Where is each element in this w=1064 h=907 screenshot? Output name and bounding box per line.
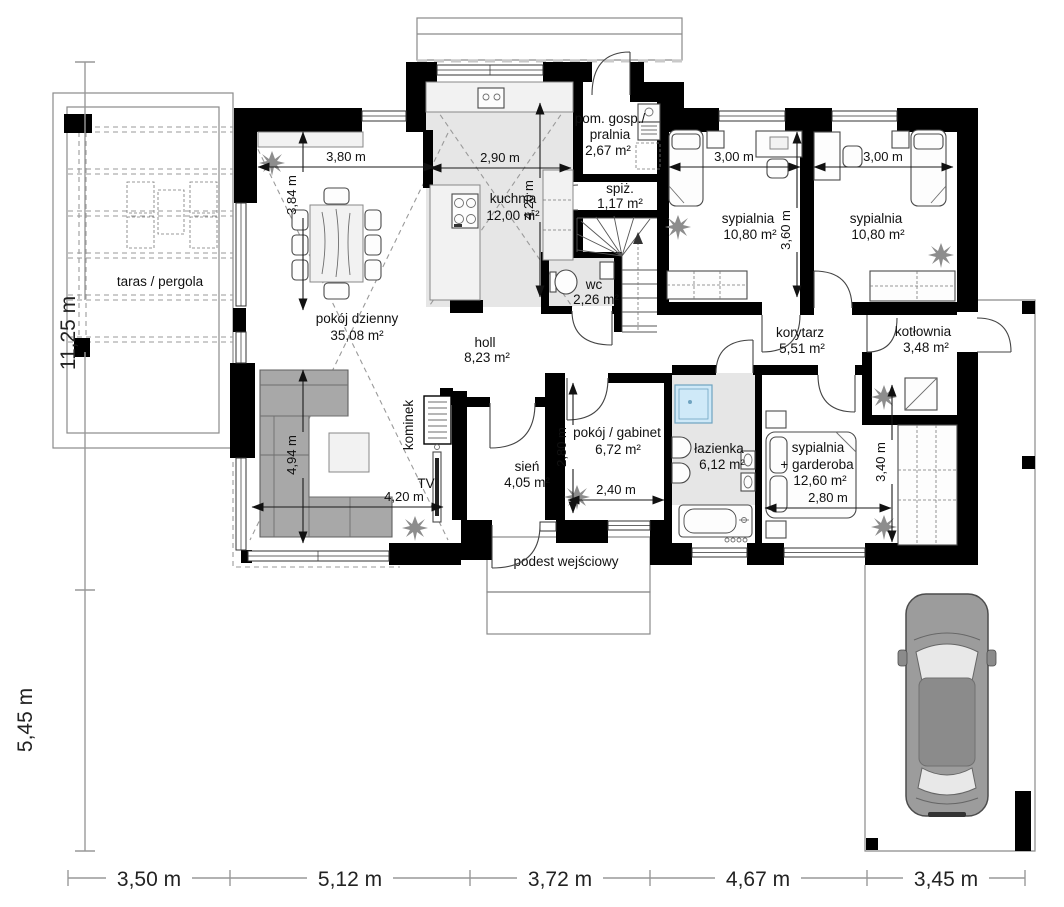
toilet [672, 437, 691, 458]
nightstand [766, 411, 786, 428]
window [248, 551, 389, 561]
living-room-name: pokój dzienny [316, 311, 399, 326]
carport-post [1015, 791, 1031, 851]
master-bedroom-door [818, 375, 855, 412]
dim-master-w-label: 2,80 m [808, 490, 848, 505]
window [719, 111, 785, 121]
pantry-label: spiż. 1,17 m² [597, 181, 643, 211]
window [437, 65, 543, 75]
back-door [592, 52, 630, 95]
dim-left-lower: 5,45 m [14, 590, 95, 851]
chair [767, 159, 788, 178]
pergola-post [64, 114, 92, 133]
hall-label: holl 8,23 m² [464, 335, 510, 365]
wardrobe [870, 271, 955, 301]
window [362, 111, 406, 121]
dim-gabinet-h-label: 2,80 m [554, 427, 569, 467]
carport-post [1022, 301, 1035, 314]
bedroom1-label: sypialnia 10,80 m² [722, 211, 777, 242]
boiler-room-area: 3,48 m² [903, 340, 949, 355]
bathroom-door [716, 340, 753, 373]
dim-bottom-5-label: 3,45 m [914, 868, 978, 891]
wardrobe-closet [898, 425, 957, 545]
dim-living-left-lower-label: 4,94 m [284, 435, 299, 475]
utility-area: 2,67 m² [585, 143, 631, 158]
hall-area: 8,23 m² [464, 350, 510, 365]
sideboard [258, 132, 363, 147]
window [236, 203, 246, 306]
dim-living-bottom-label: 4,20 m [384, 489, 424, 504]
nightstand [766, 521, 786, 538]
shower [675, 385, 712, 423]
dim-left-upper: 11,25 m [57, 62, 95, 590]
boiler-room-door [867, 315, 897, 352]
dim-bottom: 3,50 m 5,12 m 3,72 m 4,67 m 3,45 m [68, 866, 1025, 891]
vestibule-area: 4,05 m² [504, 475, 550, 490]
car [898, 594, 996, 817]
dim-master-h-label: 3,40 m [873, 442, 888, 482]
terrace-pergola: taras / pergola [53, 93, 233, 448]
living-room-area: 35,08 m² [330, 328, 384, 343]
dim-bedroom1-w-label: 3,00 m [714, 149, 754, 164]
pantry-area: 1,17 m² [597, 196, 643, 211]
car-roof [919, 678, 975, 766]
dining-table [310, 205, 363, 282]
window [236, 458, 246, 550]
bathroom-area: 6,12 m² [699, 457, 745, 472]
kitchen-sink [478, 88, 504, 108]
office-area: 6,72 m² [595, 442, 641, 457]
cooktop [452, 194, 478, 228]
wc-name: wc [585, 277, 603, 292]
window [692, 548, 747, 557]
dim-kitchen-w-label: 2,90 m [480, 150, 520, 165]
dim-living-top-label: 3,80 m [326, 149, 366, 164]
dim-bedrooms-h-label: 3,60 m [778, 210, 793, 250]
dim-left-upper-label: 11,25 m [57, 296, 80, 370]
nightstand [892, 131, 909, 148]
boiler [905, 378, 937, 410]
bathtub [679, 505, 752, 542]
bed [911, 130, 946, 206]
dim-living-top: 3,80 m [258, 149, 435, 167]
laptop [770, 137, 788, 149]
car-mirror [898, 650, 907, 666]
car-mirror [987, 650, 996, 666]
dim-bottom-2-label: 5,12 m [318, 868, 382, 891]
window [236, 332, 246, 363]
dim-master-h: 3,40 m [873, 385, 892, 542]
corridor-label: korytarz 5,51 m² [776, 325, 825, 356]
master-name-2: + garderoba [780, 457, 854, 472]
dim-gabinet-w-label: 2,40 m [596, 482, 636, 497]
sofa [260, 370, 392, 537]
window [784, 548, 865, 557]
chair [843, 146, 862, 167]
bedroom2-area: 10,80 m² [851, 227, 905, 242]
dim-kitchen-h-label: 4,20 m [521, 180, 536, 220]
dim-left-lower-label: 5,45 m [14, 688, 37, 752]
entry-platform: podest wejściowy [487, 537, 650, 634]
vestibule-name: sień [515, 459, 540, 474]
utility-label: pom. gosp./ pralnia 2,67 m² [575, 111, 646, 158]
master-area: 12,60 m² [793, 473, 847, 488]
hall-name: holl [474, 335, 495, 350]
boiler-room-label: kotłownia 3,48 m² [895, 324, 952, 355]
desk [814, 132, 840, 180]
master-name-1: sypialnia [792, 440, 845, 455]
wc-area: 2,26 m² [573, 292, 619, 307]
dim-bottom-4-label: 4,67 m [726, 868, 790, 891]
dim-bedroom2-w-label: 3,00 m [863, 149, 903, 164]
bedroom2-label: sypialnia 10,80 m² [850, 211, 905, 242]
bathroom-name: łazienka [694, 441, 744, 456]
sink [741, 473, 755, 491]
pantry-name: spiż. [606, 181, 634, 196]
kitchen-cabinets [543, 170, 573, 260]
vestibule-door [490, 403, 535, 448]
bedroom2-name: sypialnia [850, 211, 903, 226]
bed [669, 130, 703, 206]
boiler-exterior-door [977, 318, 1011, 352]
bathroom-label: łazienka 6,12 m² [694, 441, 745, 472]
office-name: pokój / gabinet [573, 425, 661, 440]
corridor-area: 5,51 m² [779, 341, 825, 356]
bedroom2-door [814, 271, 852, 308]
terrace-furniture [127, 182, 217, 248]
utility-name-2: pralnia [590, 127, 631, 142]
carport-post [1022, 456, 1035, 469]
fireplace-label: kominek [401, 400, 416, 451]
floor-plan-svg: taras / pergola podest wejściowy [0, 0, 1064, 907]
fireplace [424, 396, 451, 444]
carport-post [866, 838, 878, 850]
window [608, 521, 650, 530]
office-label: pokój / gabinet 6,72 m² [573, 425, 661, 457]
dim-bottom-1-label: 3,50 m [117, 868, 181, 891]
bidet [672, 463, 690, 483]
wc-door [572, 311, 612, 345]
floor-plan: taras / pergola podest wejściowy [0, 0, 1064, 907]
coffee-table [329, 433, 369, 472]
living-room-label: pokój dzienny 35,08 m² [316, 311, 399, 343]
utility-name-1: pom. gosp./ [575, 111, 646, 126]
pergola-beams [68, 127, 233, 342]
dim-living-left-upper-label: 3,84 m [284, 175, 299, 215]
window [832, 111, 897, 121]
nightstand [707, 131, 724, 148]
dim-bottom-3-label: 3,72 m [528, 868, 592, 891]
bedroom1-area: 10,80 m² [723, 227, 777, 242]
room-labels: pokój dzienny 35,08 m² kuchnia 12,00 m² … [316, 111, 952, 491]
bedroom1-name: sypialnia [722, 211, 775, 226]
corridor-name: korytarz [776, 325, 824, 340]
window [540, 522, 556, 531]
stair-direction-arrow [633, 232, 643, 244]
vestibule-label: sień 4,05 m² [504, 459, 550, 490]
rear-porch [417, 18, 682, 61]
taras-label: taras / pergola [117, 274, 204, 289]
wardrobe [667, 271, 747, 299]
boiler-room-name: kotłownia [895, 324, 952, 339]
